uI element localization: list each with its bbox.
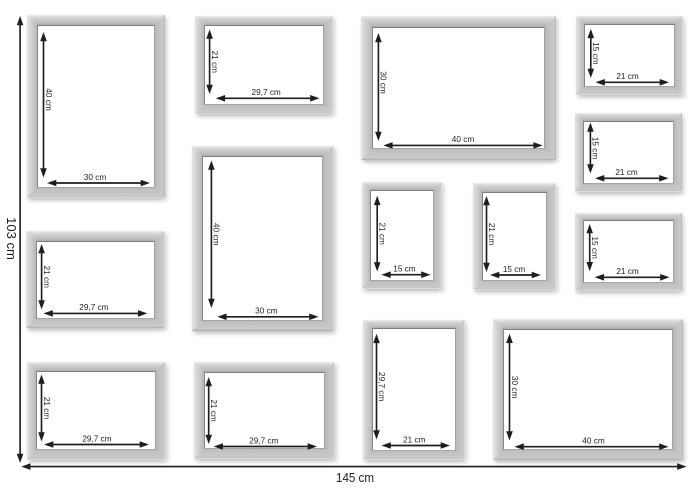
svg-text:15 cm: 15 cm xyxy=(393,264,415,274)
svg-text:15 cm: 15 cm xyxy=(590,236,600,258)
svg-text:21 cm: 21 cm xyxy=(378,223,388,245)
svg-text:30 cm: 30 cm xyxy=(379,71,389,94)
svg-text:21 cm: 21 cm xyxy=(42,266,52,288)
svg-text:15 cm: 15 cm xyxy=(503,264,525,274)
svg-text:40 cm: 40 cm xyxy=(212,223,222,246)
svg-text:21 cm: 21 cm xyxy=(403,434,425,444)
svg-text:29,7 cm: 29,7 cm xyxy=(252,87,281,97)
svg-text:40 cm: 40 cm xyxy=(582,436,605,446)
svg-text:40 cm: 40 cm xyxy=(44,88,54,111)
svg-text:30 cm: 30 cm xyxy=(510,376,520,399)
svg-text:15 cm: 15 cm xyxy=(591,137,601,159)
svg-text:29,7 cm: 29,7 cm xyxy=(79,302,108,312)
svg-text:40 cm: 40 cm xyxy=(452,134,475,144)
svg-text:29,7 cm: 29,7 cm xyxy=(82,433,111,443)
svg-text:30 cm: 30 cm xyxy=(84,172,107,182)
svg-text:21 cm: 21 cm xyxy=(487,223,497,245)
svg-text:21 cm: 21 cm xyxy=(616,266,638,276)
svg-text:29,7 cm: 29,7 cm xyxy=(249,435,278,445)
svg-text:15 cm: 15 cm xyxy=(591,42,601,64)
svg-text:21 cm: 21 cm xyxy=(42,397,52,419)
svg-text:21 cm: 21 cm xyxy=(616,71,638,81)
svg-text:103 cm: 103 cm xyxy=(4,217,18,260)
svg-text:145 cm: 145 cm xyxy=(336,470,374,485)
svg-text:29,7 cm: 29,7 cm xyxy=(377,372,387,401)
svg-text:21 cm: 21 cm xyxy=(209,399,219,421)
svg-text:21 cm: 21 cm xyxy=(615,167,637,177)
svg-text:30 cm: 30 cm xyxy=(255,306,278,316)
svg-text:21 cm: 21 cm xyxy=(210,51,220,73)
